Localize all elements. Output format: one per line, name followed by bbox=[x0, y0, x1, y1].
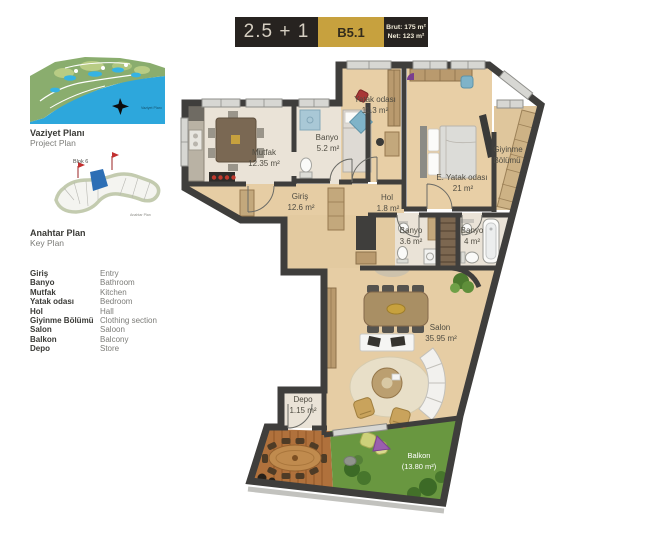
bathroom3-toilet bbox=[461, 252, 479, 263]
room-area: (13.80 m²) bbox=[402, 462, 437, 471]
room-label: Yatak odası bbox=[354, 95, 396, 104]
toilet bbox=[300, 158, 312, 178]
room-label: Giriş bbox=[292, 192, 308, 201]
room-area: 5.2 m² bbox=[317, 144, 340, 153]
linen-closet bbox=[439, 215, 457, 268]
kitchen-floor bbox=[185, 100, 368, 184]
tv-console bbox=[360, 334, 414, 351]
bathroom2-toilet bbox=[397, 247, 408, 264]
shower bbox=[300, 110, 320, 130]
floor-plan-page: 2.5 + 1 B5.1 Brut: 175 m² Net: 123 m² bbox=[0, 0, 660, 546]
room-label: Banyo bbox=[461, 226, 484, 235]
room-area: 1.15 m² bbox=[289, 406, 316, 415]
washing-machine bbox=[424, 249, 436, 264]
entry-wardrobe bbox=[328, 188, 344, 230]
room-label: E. Yatak odası bbox=[436, 173, 487, 182]
room-label: Banyo bbox=[316, 133, 339, 142]
room-area: 1.8 m² bbox=[377, 204, 400, 213]
floor-plan-drawing: Mutfak 12.35 m² Banyo 5.2 m² Yatak odası… bbox=[0, 0, 660, 546]
room-area: 4 m² bbox=[464, 237, 480, 246]
room-label: Banyo bbox=[400, 226, 423, 235]
blue-chair bbox=[461, 76, 473, 88]
room-area: 35.95 m² bbox=[425, 334, 457, 343]
kitchen-counter bbox=[187, 107, 204, 181]
room-label: Mutfak bbox=[252, 148, 277, 157]
room-area: 3.6 m² bbox=[400, 237, 423, 246]
room-label: Salon bbox=[430, 323, 450, 332]
room-area: 11.3 m² bbox=[362, 106, 389, 115]
room-area: 12.6 m² bbox=[287, 203, 314, 212]
stove bbox=[209, 172, 236, 183]
room-area: 21 m² bbox=[453, 184, 474, 193]
room-area: Bölümü bbox=[493, 156, 520, 165]
coffee-table bbox=[372, 368, 402, 398]
room-label: Hol bbox=[381, 193, 393, 202]
dining-set bbox=[364, 285, 428, 333]
room-label: Balkon bbox=[408, 451, 431, 460]
wall-pier bbox=[356, 216, 376, 250]
bathtub bbox=[483, 219, 499, 263]
room-area: 12.35 m² bbox=[248, 159, 280, 168]
hall-cabinet bbox=[356, 252, 376, 264]
room-label: Giyinme bbox=[493, 145, 523, 154]
room-label: Depo bbox=[293, 395, 313, 404]
